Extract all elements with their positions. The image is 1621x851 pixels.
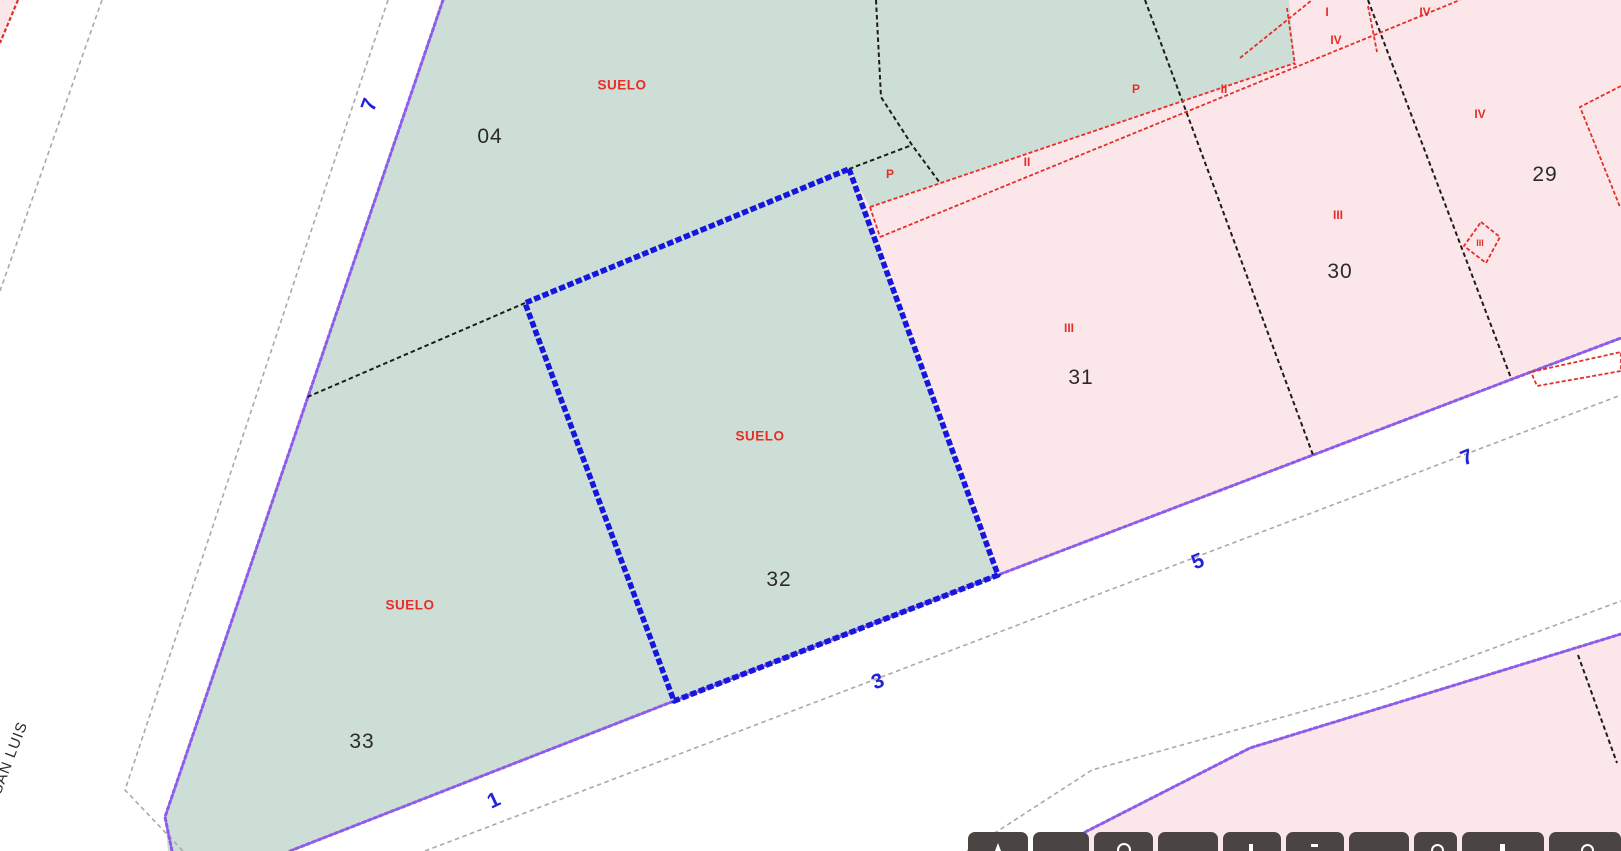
toolbar-button-glyph [995,843,1001,851]
parcel-number-30: 30 [1327,260,1352,284]
toolbar-button-3[interactable] [1094,832,1153,851]
floors-label-iii: III [1064,321,1074,335]
floors-label-ii: II [1024,155,1031,169]
parcel-number-04: 04 [477,125,502,149]
floors-label-iii: III [1333,208,1343,222]
parcel-number-31: 31 [1068,366,1093,390]
toolbar-button-glyph [1500,844,1505,851]
floors-label-iv: IV [1419,5,1430,19]
toolbar-button-glyph [1581,844,1594,851]
parcel-number-29: 29 [1532,163,1557,187]
floors-label-iv: IV [1330,33,1341,47]
floors-label-iv: IV [1474,107,1485,121]
toolbar-button-7[interactable] [1349,832,1409,851]
toolbar-button-2[interactable] [1033,832,1089,851]
parcel-number-32: 32 [766,568,791,592]
toolbar-button-1[interactable] [968,832,1028,851]
suelo-label: SUELO [735,429,784,444]
toolbar-button-glyph [1117,843,1131,851]
toolbar-button-10[interactable] [1549,832,1621,851]
floors-label-ii: II [1221,82,1228,96]
floors-label-p: P [886,167,894,181]
toolbar-button-4[interactable] [1158,832,1218,851]
toolbar-button-8[interactable] [1414,832,1457,851]
toolbar-button-glyph [1249,844,1253,851]
floors-label-i: I [1325,5,1328,19]
floors-label-p: P [1132,82,1140,96]
toolbar-button-9[interactable] [1462,832,1544,851]
street-edge-left-curb [0,0,102,291]
pink-area-bottom-right[interactable] [1048,634,1621,851]
floors-label-iii: III [1476,238,1484,248]
suelo-label: SUELO [597,78,646,93]
toolbar-button-6[interactable] [1286,832,1344,851]
toolbar-button-5[interactable] [1223,832,1281,851]
cadastral-map-viewport: SUELO SUELO SUELO 04 32 33 29 30 31 P P … [0,0,1621,851]
toolbar-button-glyph [1431,844,1444,851]
map-linework [0,0,1621,851]
parcel-number-33: 33 [349,730,374,754]
suelo-label: SUELO [385,598,434,613]
toolbar-button-glyph [1311,844,1318,847]
